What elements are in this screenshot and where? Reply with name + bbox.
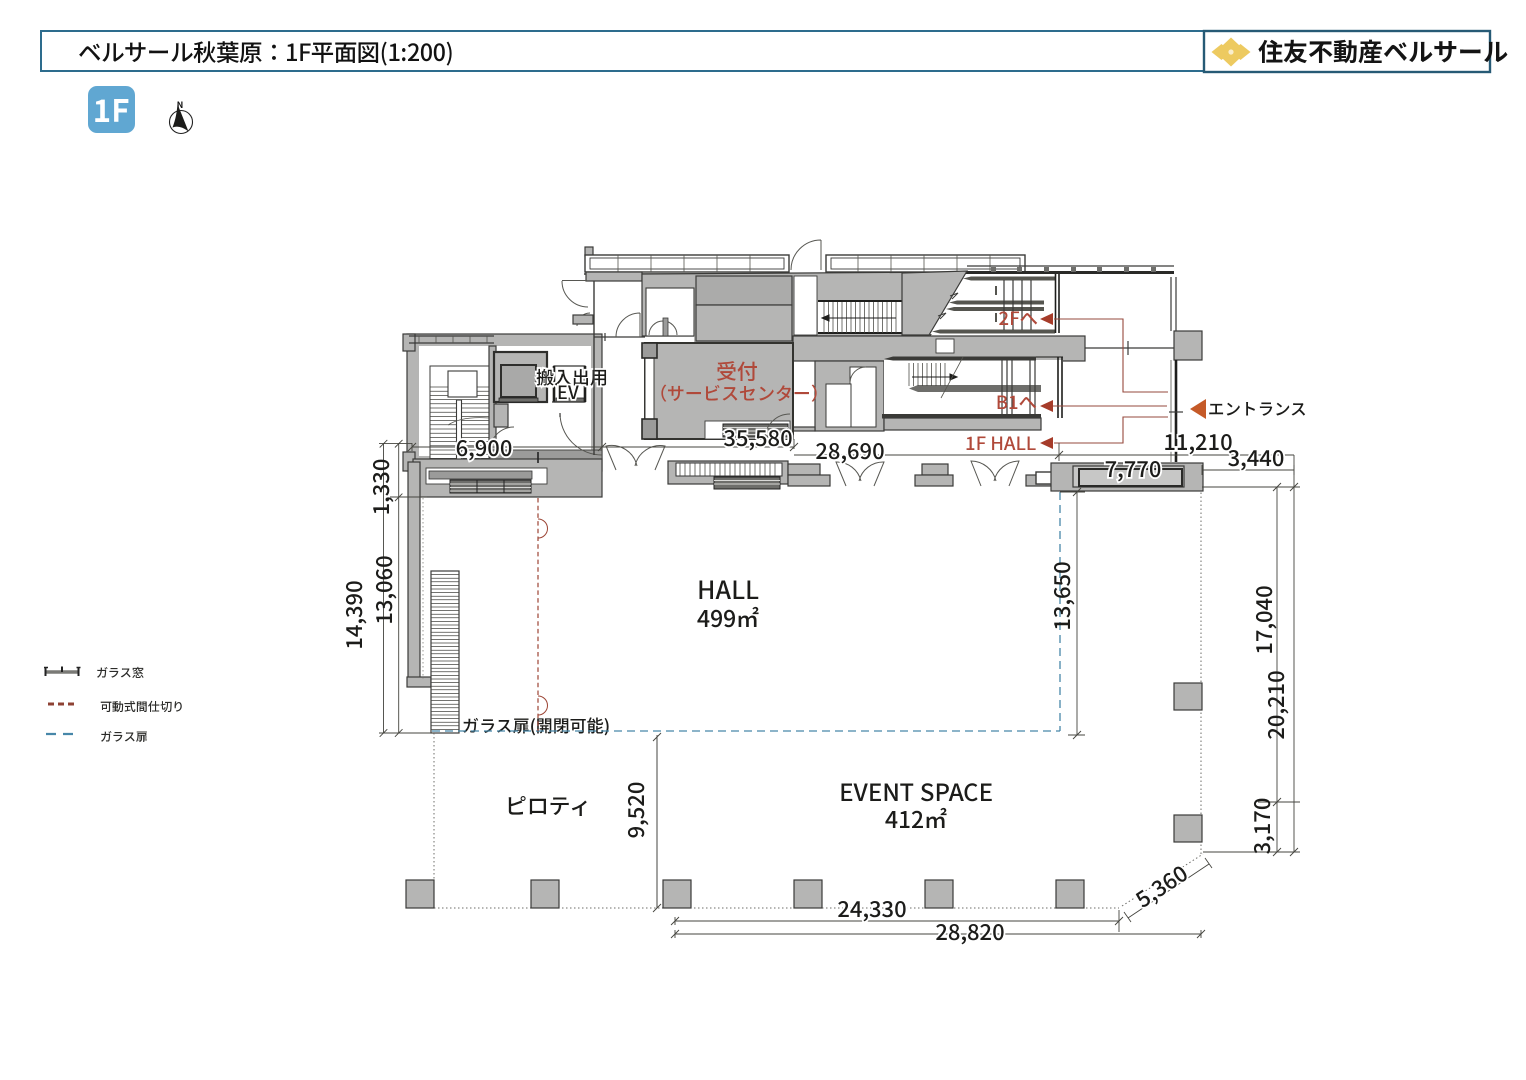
svg-text:1F: 1F xyxy=(93,86,129,131)
svg-text:ガラス扉: ガラス扉 xyxy=(100,728,148,745)
svg-text:ガラス窓: ガラス窓 xyxy=(96,664,144,681)
svg-text:（サービスセンター）: （サービスセンター） xyxy=(649,380,829,406)
svg-text:B1へ: B1へ xyxy=(996,389,1037,415)
svg-text:ベルサール秋葉原：1F平面図(1:200): ベルサール秋葉原：1F平面図(1:200) xyxy=(78,34,454,68)
svg-text:ガラス扉(開閉可能): ガラス扉(開閉可能) xyxy=(462,712,610,737)
svg-text:ピロティ: ピロティ xyxy=(505,789,592,821)
svg-text:412㎡: 412㎡ xyxy=(885,801,947,835)
svg-text:13,060: 13,060 xyxy=(367,555,399,624)
svg-text:5,360: 5,360 xyxy=(1129,857,1194,915)
svg-text:20,210: 20,210 xyxy=(1259,670,1291,739)
svg-text:28,820: 28,820 xyxy=(935,915,1004,947)
svg-text:11,210: 11,210 xyxy=(1163,425,1232,457)
svg-text:1,330: 1,330 xyxy=(364,459,396,516)
svg-text:499㎡: 499㎡ xyxy=(697,600,759,634)
svg-text:9,520: 9,520 xyxy=(619,782,651,839)
svg-text:3,170: 3,170 xyxy=(1245,798,1277,855)
svg-text:住友不動産ベルサール: 住友不動産ベルサール xyxy=(1258,33,1508,69)
svg-text:6,900: 6,900 xyxy=(456,431,513,463)
svg-text:35,580: 35,580 xyxy=(723,421,792,453)
svg-text:24,330: 24,330 xyxy=(837,892,906,924)
svg-text:可動式間仕切り: 可動式間仕切り xyxy=(100,698,184,715)
svg-text:エントランス: エントランス xyxy=(1208,396,1307,420)
svg-text:2Fへ: 2Fへ xyxy=(998,305,1038,331)
svg-text:17,040: 17,040 xyxy=(1247,585,1279,654)
svg-text:7,770: 7,770 xyxy=(1105,452,1162,484)
svg-text:28,690: 28,690 xyxy=(815,434,884,466)
svg-text:1F HALL: 1F HALL xyxy=(965,430,1036,456)
svg-text:13,650: 13,650 xyxy=(1045,561,1077,630)
svg-text:EV: EV xyxy=(557,379,579,405)
svg-text:14,390: 14,390 xyxy=(337,580,369,649)
svg-text:3,440: 3,440 xyxy=(1228,441,1285,473)
